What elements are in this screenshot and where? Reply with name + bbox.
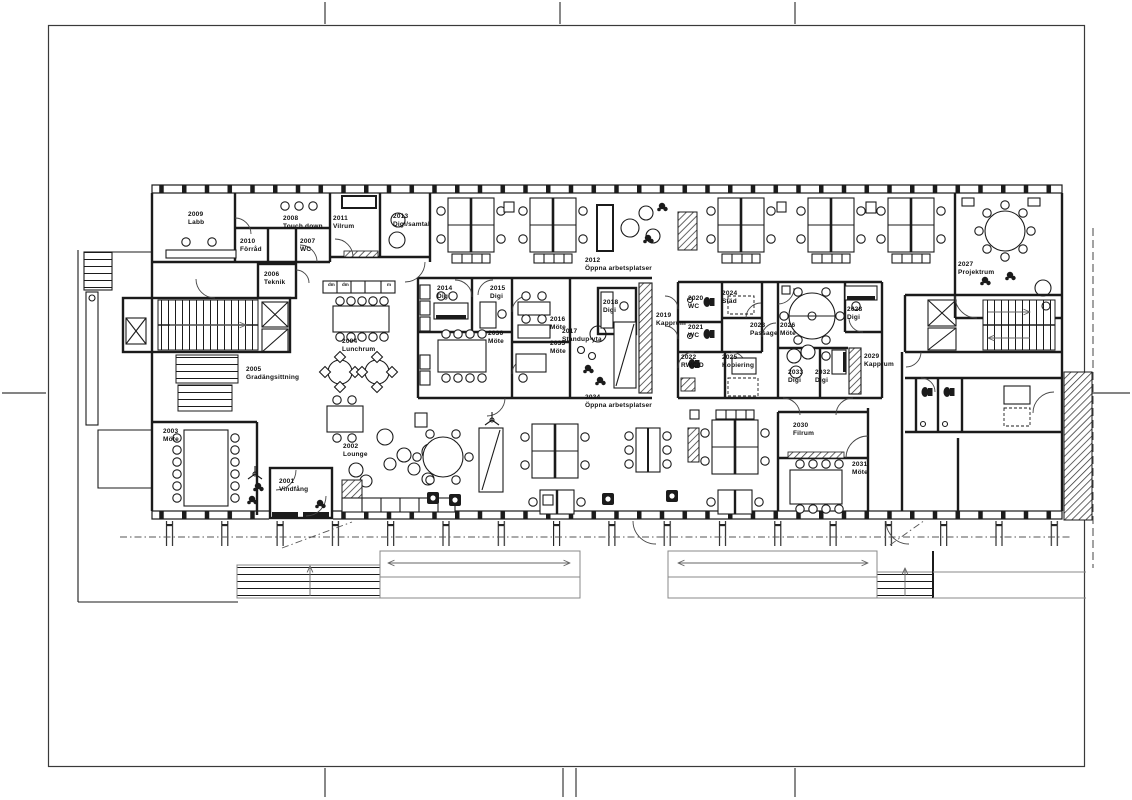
furniture bbox=[166, 196, 1051, 514]
sofa-icon bbox=[597, 205, 613, 251]
bookshelf-icon bbox=[688, 428, 699, 462]
exterior-stair-icon bbox=[84, 252, 112, 290]
drawing-sheet: 2001Vindfång 2002Lounge 2003Möte 2004Lun… bbox=[0, 0, 1132, 800]
north-facade bbox=[152, 185, 1062, 193]
copier-icon bbox=[728, 378, 758, 396]
lockers-icon bbox=[639, 283, 652, 393]
whiteboard-icon bbox=[504, 202, 514, 212]
ramp-hatch bbox=[1064, 372, 1092, 520]
colonnade bbox=[124, 521, 1068, 546]
lockers-icon bbox=[849, 348, 861, 394]
bookshelf-icon bbox=[678, 212, 697, 250]
shelving-icon bbox=[788, 452, 844, 458]
exterior-right bbox=[1064, 228, 1093, 568]
entrance-steps-left bbox=[237, 565, 380, 598]
sofa-icon bbox=[342, 480, 362, 498]
sofa-icon bbox=[342, 196, 376, 208]
floor-plan-drawing bbox=[0, 0, 1132, 800]
tiered-seating-icon bbox=[176, 355, 238, 383]
